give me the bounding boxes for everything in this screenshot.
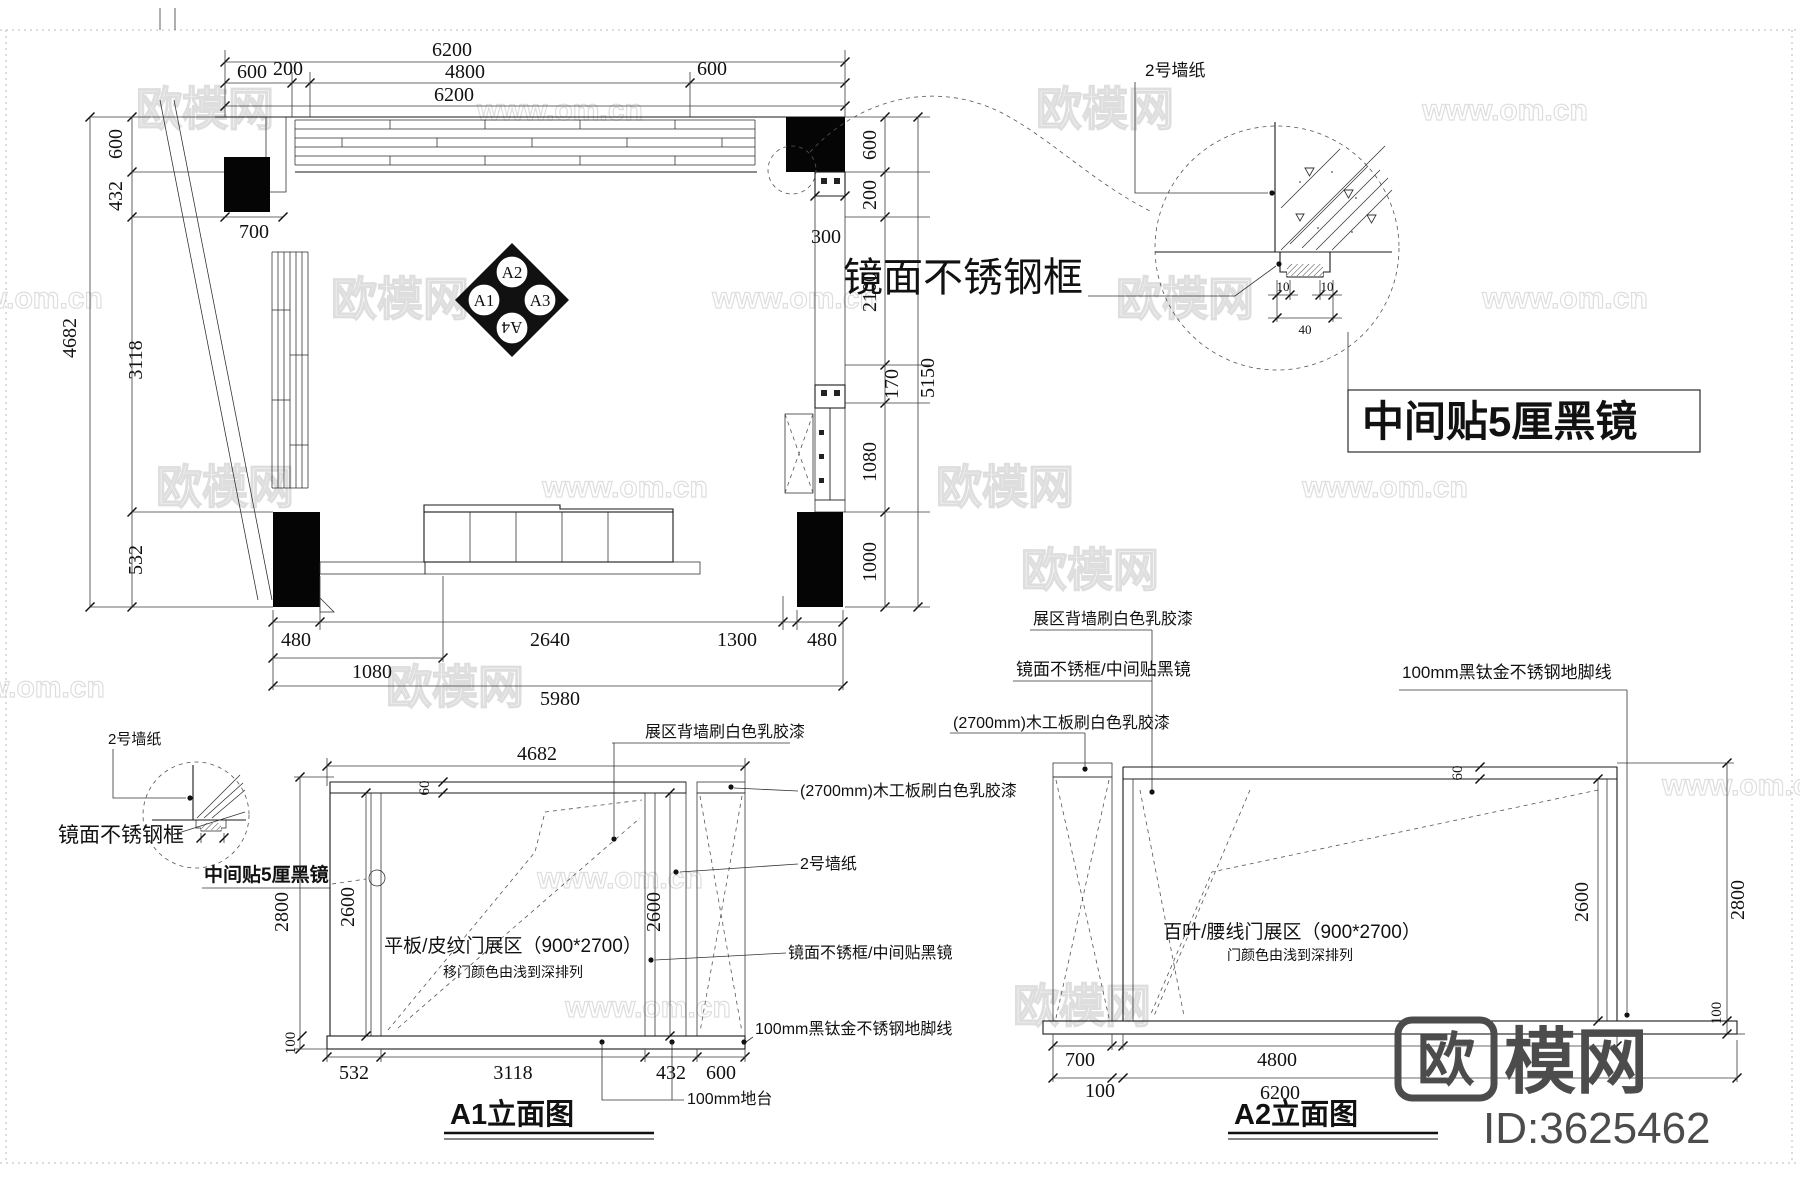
svg-text:3118: 3118 [493, 1062, 532, 1084]
site-logo: 欧 模网 [1398, 1020, 1648, 1103]
svg-text:532: 532 [125, 545, 147, 575]
svg-text:6200: 6200 [432, 39, 472, 61]
svg-text:欧模网: 欧模网 [1013, 980, 1151, 1032]
svg-text:300: 300 [811, 226, 841, 248]
svg-text:6200: 6200 [434, 84, 474, 106]
svg-text:3118: 3118 [125, 340, 147, 379]
black-mirror-label-small: 中间贴5厘黑镜 [204, 863, 329, 886]
svg-text:2号墙纸: 2号墙纸 [800, 855, 857, 873]
svg-text:10: 10 [1277, 279, 1290, 294]
floor-plan: A2 A1 A3 A4 6200 600 200 4800 600 6200 4… [59, 39, 1152, 710]
marker-a3: A3 [530, 291, 551, 310]
a2-title: A2立面图 [1228, 1097, 1438, 1139]
svg-text:100mm黑钛金不锈钢地脚线: 100mm黑钛金不锈钢地脚线 [1402, 663, 1612, 682]
svg-text:欧模网: 欧模网 [156, 461, 294, 513]
drawing-id: ID:3625462 [1483, 1104, 1711, 1153]
svg-text:2640: 2640 [530, 629, 570, 651]
svg-text:模网: 模网 [1504, 1023, 1648, 1103]
svg-text:A1立面图: A1立面图 [450, 1097, 574, 1131]
svg-text:2800: 2800 [1727, 880, 1749, 920]
svg-text:1000: 1000 [859, 542, 881, 582]
svg-text:镜面不锈框/中间贴黑镜: 镜面不锈框/中间贴黑镜 [1016, 660, 1191, 679]
svg-text:欧模网: 欧模网 [1021, 544, 1159, 596]
svg-text:www.om.cn: www.om.cn [1421, 94, 1588, 127]
svg-text:100mm黑钛金不锈钢地脚线: 100mm黑钛金不锈钢地脚线 [755, 1020, 952, 1038]
svg-text:4800: 4800 [445, 61, 485, 83]
marker-a1: A1 [474, 291, 495, 310]
svg-text:欧模网: 欧模网 [1116, 273, 1254, 325]
svg-text:100: 100 [283, 1032, 299, 1055]
svg-text:5150: 5150 [917, 358, 939, 398]
svg-text:欧模网: 欧模网 [1036, 83, 1174, 135]
svg-text:4682: 4682 [59, 318, 81, 358]
a2-zone-title: 百叶/腰线门展区（900*2700） [1163, 921, 1421, 943]
svg-text:60: 60 [417, 781, 433, 796]
svg-text:www.om.cn: www.om.cn [0, 282, 103, 315]
svg-text:480: 480 [807, 629, 837, 651]
a2-zone-subtitle: 门颜色由浅到深排列 [1227, 947, 1353, 963]
detail-small-dims: 10 10 40 [1268, 279, 1342, 337]
svg-text:600: 600 [105, 129, 127, 159]
svg-text:600: 600 [237, 61, 267, 83]
svg-text:www.om.cn: www.om.cn [1661, 769, 1800, 802]
marker-a4: A4 [501, 318, 522, 337]
elevation-marker: A2 A1 A3 A4 [455, 243, 569, 357]
svg-text:480: 480 [281, 629, 311, 651]
svg-text:700: 700 [1065, 1049, 1095, 1071]
svg-text:展区背墙刷白色乳胶漆: 展区背墙刷白色乳胶漆 [645, 723, 805, 741]
plan-bottom-dimensions: 480 2640 1300 480 1080 5980 [269, 576, 848, 710]
a1-dimensions: 4682 60 2800 2600 2600 100 532 3118 432 … [271, 743, 750, 1084]
svg-text:www.om.cn: www.om.cn [476, 94, 643, 127]
svg-text:www.om.cn: www.om.cn [564, 991, 731, 1024]
svg-text:A2立面图: A2立面图 [1234, 1097, 1358, 1131]
svg-text:4682: 4682 [517, 743, 557, 765]
svg-text:60: 60 [1450, 766, 1466, 781]
marker-a2: A2 [502, 263, 523, 282]
a1-zone-subtitle: 移门颜色由浅到深排列 [443, 964, 583, 980]
svg-text:200: 200 [859, 180, 881, 210]
svg-text:200: 200 [273, 58, 303, 80]
svg-text:40: 40 [1299, 322, 1312, 337]
svg-text:432: 432 [656, 1062, 686, 1084]
svg-text:www.om.cn: www.om.cn [0, 671, 105, 704]
svg-text:1080: 1080 [859, 442, 881, 482]
svg-text:www.om.cn: www.om.cn [1481, 282, 1648, 315]
svg-text:700: 700 [239, 221, 269, 243]
svg-text:2600: 2600 [337, 887, 359, 927]
svg-text:欧模网: 欧模网 [386, 661, 524, 713]
svg-text:600: 600 [706, 1062, 736, 1084]
svg-text:www.om.cn: www.om.cn [1301, 471, 1468, 504]
black-mirror-label: 中间贴5厘黑镜 [1362, 398, 1637, 445]
svg-text:532: 532 [339, 1062, 369, 1084]
svg-text:600: 600 [697, 58, 727, 80]
elevation-a1: 平板/皮纹门展区（900*2700） 移门颜色由浅到深排列 4682 60 28… [271, 723, 1017, 1139]
svg-text:www.om.cn: www.om.cn [536, 862, 703, 895]
svg-text:432: 432 [105, 181, 127, 211]
svg-text:www.om.cn: www.om.cn [541, 471, 708, 504]
svg-text:欧: 欧 [1417, 1028, 1475, 1093]
svg-text:1300: 1300 [717, 629, 757, 651]
cad-drawing-sheet: 欧模网 www.om.cn 欧模网 www.om.cn www.om.cn 欧模… [0, 0, 1800, 1200]
svg-text:4800: 4800 [1257, 1049, 1297, 1071]
a1-title: A1立面图 [444, 1097, 654, 1139]
a1-zone-title: 平板/皮纹门展区（900*2700） [384, 935, 642, 957]
plan-bottom-wall [320, 505, 700, 574]
svg-text:2600: 2600 [643, 892, 665, 932]
svg-text:2800: 2800 [271, 892, 293, 932]
plan-top-louver-wall [215, 117, 845, 212]
svg-text:欧模网: 欧模网 [331, 273, 469, 325]
svg-text:2600: 2600 [1571, 882, 1593, 922]
svg-text:欧模网: 欧模网 [136, 83, 274, 135]
svg-text:(2700mm)木工板刷白色乳胶漆: (2700mm)木工板刷白色乳胶漆 [800, 782, 1017, 800]
wallpaper-label: 2号墙纸 [1145, 61, 1205, 80]
svg-text:(2700mm)木工板刷白色乳胶漆: (2700mm)木工板刷白色乳胶漆 [953, 714, 1170, 732]
watermark: 欧模网 www.om.cn 欧模网 www.om.cn www.om.cn 欧模… [0, 83, 1800, 1032]
svg-text:170: 170 [881, 369, 903, 399]
wallpaper-label-small: 2号墙纸 [108, 731, 161, 748]
svg-text:镜面不锈框/中间贴黑镜: 镜面不锈框/中间贴黑镜 [788, 943, 952, 962]
svg-text:欧模网: 欧模网 [936, 461, 1074, 513]
detail-callout-small: 2号墙纸 镜面不锈钢框 中间贴5厘黑镜 [58, 731, 385, 888]
mirror-frame-label: 镜面不锈钢框 [843, 256, 1083, 300]
mirror-frame-label-small: 镜面不锈钢框 [58, 824, 184, 847]
svg-text:展区背墙刷白色乳胶漆: 展区背墙刷白色乳胶漆 [1033, 610, 1193, 628]
svg-text:100: 100 [1709, 1002, 1725, 1025]
svg-text:1080: 1080 [352, 661, 392, 683]
svg-text:100: 100 [1085, 1080, 1115, 1102]
svg-text:10: 10 [1321, 279, 1334, 294]
svg-text:5980: 5980 [540, 688, 580, 710]
svg-text:600: 600 [859, 130, 881, 160]
svg-text:100mm地台: 100mm地台 [687, 1090, 772, 1108]
